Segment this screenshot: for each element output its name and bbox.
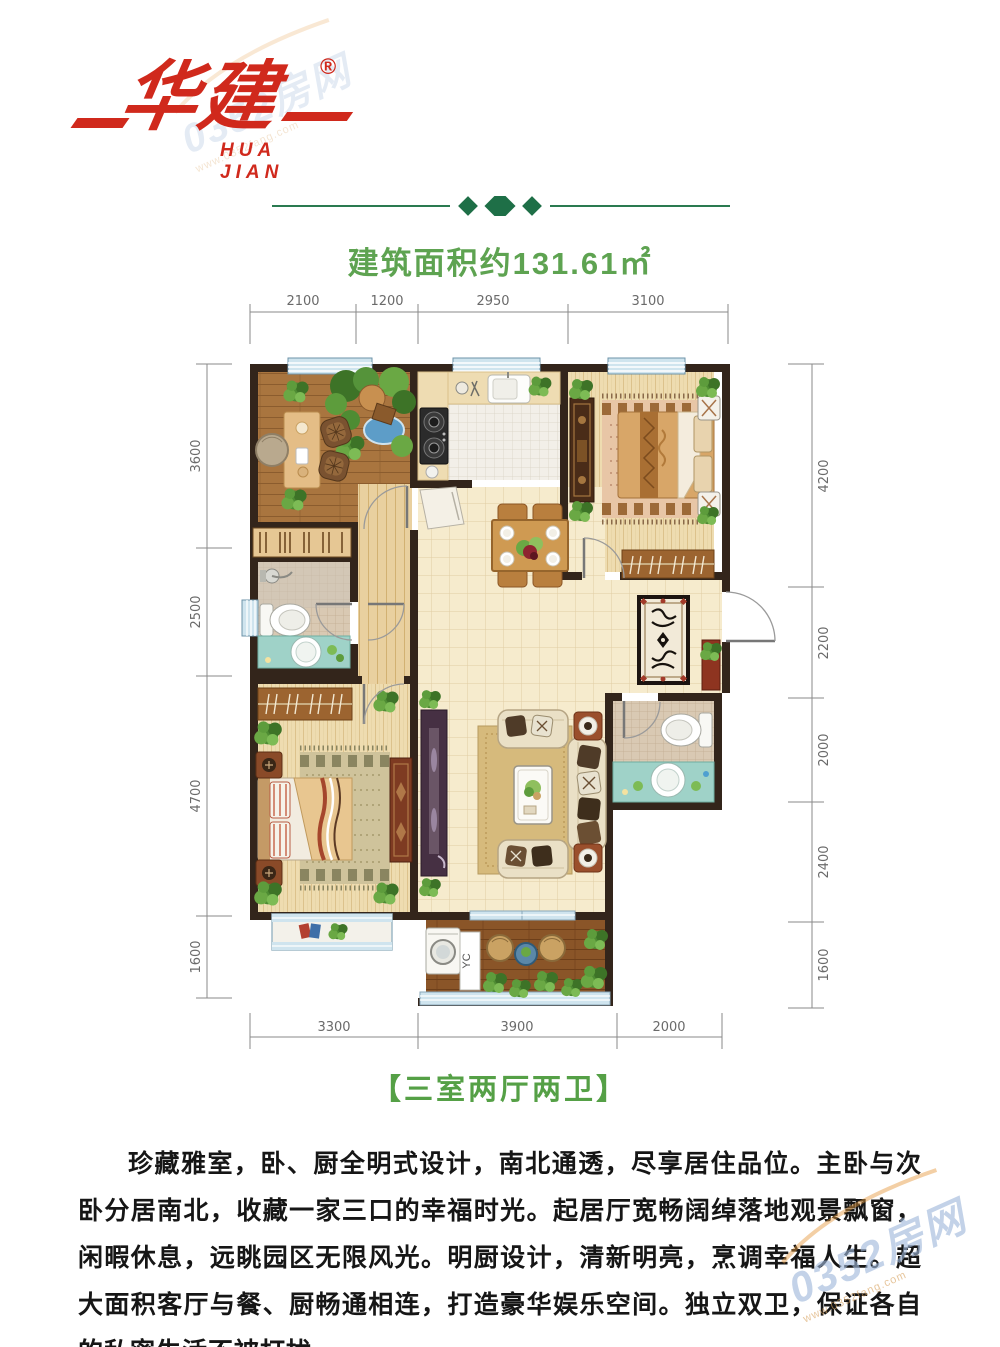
round-chair [256, 434, 288, 466]
pillow [694, 416, 712, 452]
svg-text:2500: 2500 [189, 595, 204, 628]
bath1-vanity [258, 636, 350, 668]
toilet [661, 713, 712, 747]
floor-plan: YC [170, 280, 870, 1070]
svg-text:1600: 1600 [189, 940, 204, 973]
bedroom2-bed [618, 412, 714, 498]
svg-text:2100: 2100 [286, 294, 319, 309]
svg-text:4700: 4700 [189, 779, 204, 812]
svg-text:3300: 3300 [317, 1020, 350, 1035]
logo-english: HUA JIAN [220, 140, 348, 184]
bedroom2-wardrobe [622, 550, 714, 578]
svg-text:3600: 3600 [189, 439, 204, 472]
console-table [700, 640, 722, 690]
sofa-right [568, 738, 606, 850]
washing-machine [426, 928, 460, 974]
svg-text:2000: 2000 [817, 733, 832, 766]
door-entry [726, 592, 775, 641]
side-table [574, 844, 602, 872]
nightstand [698, 396, 720, 420]
registered-mark: ® [320, 54, 336, 80]
svg-text:4200: 4200 [817, 459, 832, 492]
cooktop [420, 408, 448, 464]
nightstand [256, 860, 282, 886]
tv-cabinet [421, 710, 447, 876]
sofa-top [498, 710, 568, 748]
bedroom2-cabinet [570, 398, 594, 502]
coffee-table [514, 766, 552, 824]
window-bedroom2 [608, 358, 685, 374]
svg-text:1600: 1600 [817, 948, 832, 981]
balcony-table [515, 943, 537, 965]
toilet [260, 604, 310, 636]
page-title: 建筑面积约131.61㎡ [0, 238, 1000, 283]
side-table [574, 712, 602, 740]
svg-text:1200: 1200 [370, 294, 403, 309]
diamond-icon [484, 196, 515, 216]
kitchen-sink [488, 372, 530, 403]
kitchen-knob [426, 466, 438, 478]
sofa-bottom [498, 840, 568, 878]
svg-text:3900: 3900 [500, 1020, 533, 1035]
master-bed [258, 778, 352, 860]
svg-text:2200: 2200 [817, 626, 832, 659]
foyer-rug [637, 595, 690, 685]
svg-text:YC: YC [461, 953, 473, 968]
diamond-icon [458, 196, 478, 216]
logo-stroke-right [281, 112, 353, 121]
dim-top [250, 304, 728, 344]
svg-text:2950: 2950 [476, 294, 509, 309]
description-paragraph: 珍藏雅室，卧、厨全明式设计，南北通透，尽享居住品位。主卧与次卧分居南北，收藏一家… [78, 1141, 922, 1347]
pillow [694, 456, 712, 492]
fridge [420, 487, 464, 529]
nightstand [256, 752, 282, 778]
bay-window-master [272, 914, 392, 950]
pillow [576, 744, 601, 769]
master-wardrobe [258, 688, 352, 720]
room-living [419, 690, 606, 897]
svg-text:2400: 2400 [817, 845, 832, 878]
diamond-icon [522, 196, 542, 216]
balcony-chair [487, 935, 513, 961]
section-divider [0, 196, 1000, 216]
window-bath1 [242, 600, 258, 636]
brand-logo: 华建 ® HUA JIAN [88, 52, 348, 172]
layout-tagline: 【三室两厅两卫】 [0, 1066, 1000, 1108]
desk-monitor [296, 448, 308, 464]
balcony-chair [539, 935, 565, 961]
svg-text:3100: 3100 [631, 294, 664, 309]
bath2-vanity [613, 762, 714, 802]
balcony-slider-window [470, 911, 575, 920]
logo-chinese: 华建 [115, 60, 284, 136]
laundry-label: YC [460, 932, 480, 990]
master-cabinet [390, 758, 412, 862]
bookshelf [253, 528, 351, 557]
flyer-page: 0352房网 www.0352fang.com 华建 ® HUA JIAN 建筑… [0, 0, 1000, 1347]
divider-graphic [0, 196, 1000, 216]
desk-lamp [296, 422, 308, 434]
svg-text:2000: 2000 [652, 1020, 685, 1035]
